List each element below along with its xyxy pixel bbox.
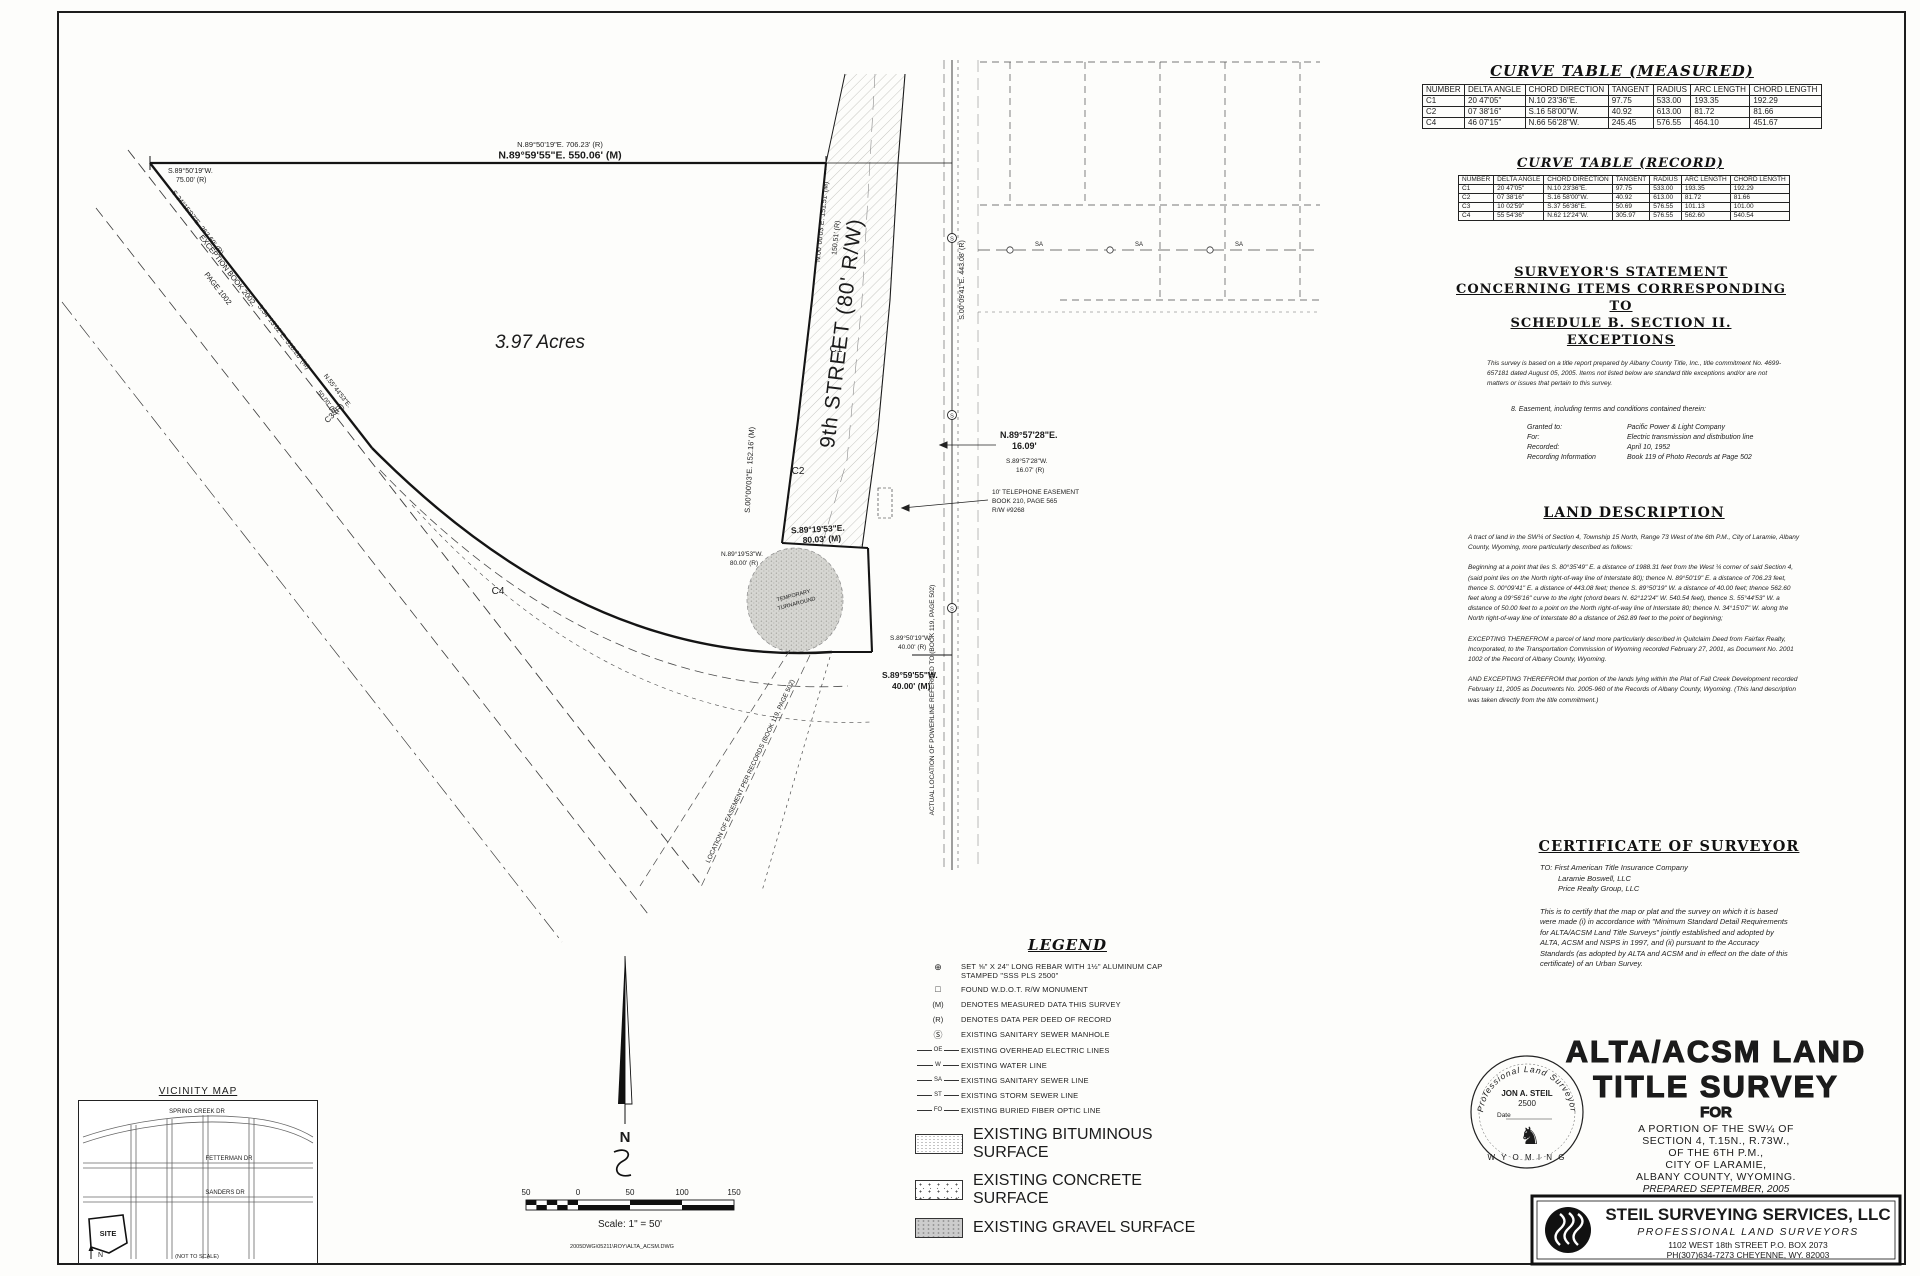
statement-title-line: SURVEYOR'S STATEMENT [1455,264,1787,281]
cell: 540.54 [1730,212,1789,221]
col-header: RADIUS [1650,176,1682,185]
cell: S.16 58'00"W. [1525,107,1608,118]
cell: 40.92 [1608,107,1653,118]
easement-value: Pacific Power & Light Company [1627,423,1787,433]
statement-intro: This survey is based on a title report p… [1487,359,1785,390]
legend-item: Ⓢ EXISTING SANITARY SEWER MANHOLE [915,1028,1220,1041]
vicinity-map-title: VICINITY MAP [78,1086,318,1097]
utility-corridor [944,60,1320,870]
sewer-tag: SA [1035,242,1043,248]
overhead-electric-line-icon: OE [915,1047,961,1053]
cell: N.10 23'36"E. [1525,96,1608,107]
land-description-p3: EXCEPTING THEREFROM a parcel of land mor… [1468,635,1800,666]
legend-title: LEGEND [915,936,1220,954]
north-label: N [620,1129,631,1146]
manhole-letter: S [950,414,954,420]
table-row: C207 38'16"S.16 58'00"W.40.92613.0081.72… [1423,107,1822,118]
firm-tagline: PROFESSIONAL LAND SURVEYORS [1637,1226,1859,1238]
manhole-symbol-icon: Ⓢ [915,1028,961,1041]
label-stub-east: S.00°00'03"E. 152.16' (M) [743,426,757,513]
vicinity-scale-note: (NOT TO SCALE) [175,1254,219,1260]
table-row: C455 54'36"N.62 12'24"W.305.97576.55562.… [1459,212,1790,221]
certificate-of-surveyor: CERTIFICATE OF SURVEYOR TO: First Americ… [1528,838,1810,970]
legend-label: EXISTING WATER LINE [961,1061,1047,1070]
vicinity-street-label: SPRING CREEK DR [169,1109,225,1115]
label-powerline-location: ACTUAL LOCATION OF POWERLINE REFERRED TO… [929,585,936,816]
line-tag: FO [934,1107,942,1113]
legend-item: FO EXISTING BURIED FIBER OPTIC LINE [915,1104,1220,1116]
vicinity-map-box: SPRING CREEK DR FETTERMAN DR SANDERS DR … [78,1100,318,1264]
sewer-tag: SA [1135,242,1143,248]
label-curve-c1: C1 [830,344,843,355]
title-location-4: CITY OF LARAMIE, [1665,1159,1766,1171]
land-description-p1: A tract of land in the SW¼ of Section 4,… [1468,533,1800,553]
scale-tick: 100 [675,1188,689,1197]
cell: 305.97 [1612,212,1650,221]
cell: 81.66 [1750,107,1822,118]
legend-item: (R) DENOTES DATA PER DEED OF RECORD [915,1013,1220,1025]
legend-label: EXISTING OVERHEAD ELECTRIC LINES [961,1046,1110,1055]
label-curve-c2: C2 [792,466,805,477]
easement-label: Recorded: [1527,443,1627,453]
curve-table-record-grid: NUMBER DELTA ANGLE CHORD DIRECTION TANGE… [1458,175,1790,221]
cell: 576.55 [1653,118,1691,129]
legend-label: EXISTING SANITARY SEWER MANHOLE [961,1030,1110,1039]
cell: N.66 56'28"W. [1525,118,1608,129]
certificate-to-3: Price Realty Group, LLC [1558,884,1810,895]
dimension-leaders [878,442,996,518]
firm-phone: PH(307)634-7273 CHEYENNE, WY. 82003 [1667,1250,1830,1260]
seal-number: 2500 [1518,1099,1536,1108]
firm-name: STEIL SURVEYING SERVICES, LLC [1605,1205,1890,1224]
vicinity-streets [83,1115,313,1259]
col-header: CHORD LENGTH [1730,176,1789,185]
legend-item: (M) DENOTES MEASURED DATA THIS SURVEY [915,998,1220,1010]
cell: N.62 12'24"W. [1544,212,1612,221]
scale-caption: Scale: 1" = 50' [598,1219,662,1230]
label-stub-dist-m: 80.03' (M) [802,533,841,545]
easement-value: Book 119 of Photo Records at Page 502 [1627,453,1787,463]
title-line-2: TITLE SURVEY [1593,1069,1839,1104]
cell: 97.75 [1608,96,1653,107]
vicinity-street-label: FETTERMAN DR [206,1156,254,1162]
legend-item: EXISTING BITUMINOUS SURFACE [915,1126,1220,1162]
line-tag: ST [934,1092,942,1098]
cell: 20 47'05" [1494,185,1544,194]
label-bottom-bearing-r: S.89°50'19"W. [890,634,932,642]
col-header: NUMBER [1423,85,1465,96]
col-header: RADIUS [1653,85,1691,96]
cell: 10 02'59" [1494,203,1544,212]
easement-row: Recording Information Book 119 of Photo … [1527,453,1787,463]
cell: 97.75 [1612,185,1650,194]
easement-row: Recorded: April 10, 1952 [1527,443,1787,453]
rebar-symbol-icon: ⊕ [915,962,961,973]
legend-item: EXISTING CONCRETE SURFACE [915,1172,1220,1208]
label-bottom-dist-r: 40.00' (R) [898,644,926,651]
legend-item: SA EXISTING SANITARY SEWER LINE [915,1074,1220,1086]
label-mid-bearing-r: S.89°57'28"W. [1006,457,1048,465]
sewer-tag: SA [1235,242,1243,248]
cell: 533.00 [1650,185,1682,194]
monument-symbol-icon: □ [915,984,961,994]
legend-label: FOUND W.D.O.T. R/W MONUMENT [961,985,1088,994]
table-row: C207 38'16"S.16 58'00"W.40.92613.0081.72… [1459,194,1790,203]
col-header: CHORD DIRECTION [1544,176,1612,185]
cell: 101.13 [1681,203,1730,212]
interstate-row-lines [62,150,702,942]
legend-label: EXISTING GRAVEL SURFACE [973,1219,1195,1237]
legend-item: EXISTING GRAVEL SURFACE [915,1218,1220,1238]
legend-label: EXISTING STORM SEWER LINE [961,1091,1078,1100]
label-curve-c4: C4 [492,586,505,597]
title-location-5: ALBANY COUNTY, WYOMING. [1636,1171,1796,1183]
legend-label: EXISTING BURIED FIBER OPTIC LINE [961,1106,1101,1115]
manhole-letter: S [950,607,954,613]
line-tag: W [935,1062,941,1068]
cell: C3 [1459,203,1494,212]
concrete-swatch-icon [915,1180,963,1200]
col-header: DELTA ANGLE [1494,176,1544,185]
col-header: DELTA ANGLE [1465,85,1526,96]
vicinity-north-label: N [98,1252,103,1259]
easement-row: For: Electric transmission and distribut… [1527,433,1787,443]
title-location-1: A PORTION OF THE SW¼ OF [1638,1123,1794,1135]
scale-tick: 150 [727,1188,741,1197]
legend-label: EXISTING CONCRETE SURFACE [973,1172,1220,1208]
label-tel-easement-1: 10' TELEPHONE EASEMENT [992,489,1079,496]
land-description-p2: Beginning at a point that lies S. 80°35'… [1468,563,1800,624]
cell: 576.55 [1650,203,1682,212]
land-description-p4: AND EXCEPTING THEREFROM that portion of … [1468,675,1800,706]
col-header: ARC LENGTH [1691,85,1750,96]
easement-row: Granted to: Pacific Power & Light Compan… [1527,423,1787,433]
gravel-turnaround [747,548,843,652]
label-easement-location: LOCATION OF EASEMENT PER RECORDS (BOOK 1… [705,679,796,865]
cell: 192.29 [1750,96,1822,107]
col-header: NUMBER [1459,176,1494,185]
cell: N.10 23'36"E. [1544,185,1612,194]
seal-state: W Y O M I N G [1487,1153,1566,1162]
statement-item-8: 8. Easement, including terms and conditi… [1511,406,1787,413]
label-mid-bearing-m: N.89°57'28"E. [1000,430,1058,440]
cell: C2 [1423,107,1465,118]
legend-label: SET ⅝" X 24" LONG REBAR WITH 1½" ALUMINU… [961,962,1171,980]
cell: C1 [1423,96,1465,107]
cell: 07 38'16" [1494,194,1544,203]
label-hwy-measured: S.34°13'02"E. 318.28' (M) [256,303,312,371]
col-header: ARC LENGTH [1681,176,1730,185]
legend-item: □ FOUND W.D.O.T. R/W MONUMENT [915,983,1220,995]
cell: 55 54'36" [1494,212,1544,221]
legend-label: EXISTING SANITARY SEWER LINE [961,1076,1089,1085]
label-east-line: S.00°09'41"E. 443.08' (R) [958,240,966,320]
col-header: CHORD LENGTH [1750,85,1822,96]
cell: S.16 58'00"W. [1544,194,1612,203]
title-prepared: PREPARED SEPTEMBER, 2005 [1643,1184,1790,1195]
cell: C4 [1459,212,1494,221]
label-nw-bearing: S.89°50'19"W. [168,167,213,175]
cell: 193.35 [1681,185,1730,194]
label-nw-distance: 75.00' (R) [176,177,207,184]
easement-value: Electric transmission and distribution l… [1627,433,1787,443]
scale-tick: 0 [576,1188,581,1197]
statement-title-line: CONCERNING ITEMS CORRESPONDING TO [1455,281,1787,315]
seal-horse-icon: ♞ [1519,1123,1541,1150]
cell: 613.00 [1653,107,1691,118]
label-bottom-dist-m: 40.00' (M) [892,681,931,691]
manhole-letter: S [950,237,954,243]
legend-label: DENOTES DATA PER DEED OF RECORD [961,1015,1112,1024]
label-hwy-record: S.34°15'07"E. 263.69' (R) [170,189,225,257]
record-symbol: (R) [915,1015,961,1024]
cell: 576.55 [1650,212,1682,221]
label-mid-dist-r: 16.07' (R) [1016,467,1044,474]
cell: C4 [1423,118,1465,129]
certificate-body: This is to certify that the map or plat … [1540,907,1792,970]
cell: 20 47'05" [1465,96,1526,107]
scale-tick: 50 [626,1188,635,1197]
cell: 464.10 [1691,118,1750,129]
storm-sewer-line-icon: ST [915,1092,961,1098]
cell: S.37 56'36"E. [1544,203,1612,212]
fiber-optic-line-icon: FO [915,1107,961,1113]
label-top-measured: N.89°59'55"E. 550.06' (M) [498,150,621,162]
easement-value: April 10, 1952 [1627,443,1787,453]
cell: 192.29 [1730,185,1789,194]
title-line-1: ALTA/ACSM LAND [1566,1034,1867,1069]
vicinity-map-drawing: SPRING CREEK DR FETTERMAN DR SANDERS DR … [79,1101,316,1263]
title-location-3: OF THE 6TH P.M., [1668,1147,1763,1159]
cell: 81.66 [1730,194,1789,203]
measured-symbol: (M) [915,1000,961,1009]
firm-address: 1102 WEST 18th STREET P.O. BOX 2073 [1668,1240,1828,1250]
sanitary-sewer-line-icon: SA [915,1077,961,1083]
gravel-swatch-icon [915,1218,963,1238]
line-tag: SA [934,1077,942,1083]
cell: 50.69 [1612,203,1650,212]
survey-sheet: SA SA SA [0,0,1920,1276]
label-tel-easement-2: BOOK 210, PAGE 565 [992,498,1058,505]
table-row: C120 47'05"N.10 23'36"E.97.75533.00193.3… [1423,96,1822,107]
water-line-icon: W [915,1062,961,1068]
adjacent-lot-grid [980,62,1320,300]
easement-label: Recording Information [1527,453,1627,463]
label-mid-dist-m: 16.09' [1012,441,1037,451]
table-row: C120 47'05"N.10 23'36"E.97.75533.00193.3… [1459,185,1790,194]
legend-item: ST EXISTING STORM SEWER LINE [915,1089,1220,1101]
certificate-title: CERTIFICATE OF SURVEYOR [1528,838,1810,855]
col-header: CHORD DIRECTION [1525,85,1608,96]
cell: 533.00 [1653,96,1691,107]
cell: 451.67 [1750,118,1822,129]
cell: 46 07'15" [1465,118,1526,129]
legend-label: EXISTING BITUMINOUS SURFACE [973,1126,1220,1162]
label-stub-bearing-r: N.89°19'53"W. [721,550,763,558]
curve-table-record: CURVE TABLE (RECORD) NUMBER DELTA ANGLE … [1458,156,1783,221]
seal-name: JON A. STEIL [1501,1089,1552,1098]
file-note: 2005DWG\05211\ROY\ALTA_ACSM.DWG [570,1244,674,1250]
curve-table-measured-grid: NUMBER DELTA ANGLE CHORD DIRECTION TANGE… [1422,84,1822,129]
legend: LEGEND ⊕ SET ⅝" X 24" LONG REBAR WITH 1½… [915,936,1220,1248]
certificate-to-2: Laramie Boswell, LLC [1558,874,1810,885]
label-tel-easement-3: R/W #9268 [992,507,1025,514]
curve-table-measured: CURVE TABLE (MEASURED) NUMBER DELTA ANGL… [1422,62,1822,129]
seal-date-label: Date [1497,1112,1511,1119]
statement-title-line: SCHEDULE B. SECTION II. EXCEPTIONS [1455,315,1787,349]
certificate-to-1: TO: First American Title Insurance Compa… [1540,863,1810,874]
cell: 613.00 [1650,194,1682,203]
label-acreage: 3.97 Acres [495,332,586,353]
table-row: C446 07'15"N.66 56'28"W.245.45576.55464.… [1423,118,1822,129]
line-tag: OE [934,1047,943,1053]
curve-table-record-title: CURVE TABLE (RECORD) [1458,156,1783,171]
scale-tick: 50 [522,1188,531,1197]
cell: 81.72 [1691,107,1750,118]
vicinity-map: VICINITY MAP SPRING CREEK DR FETTERMAN D… [78,1086,318,1264]
title-location-2: SECTION 4, T.15N., R.73W., [1642,1135,1790,1147]
vicinity-street-label: SANDERS DR [205,1190,245,1196]
cell: 245.45 [1608,118,1653,129]
vicinity-site-label: SITE [100,1229,117,1238]
scale-bar [526,1200,734,1210]
surveyors-statement-title: SURVEYOR'S STATEMENT CONCERNING ITEMS CO… [1455,264,1787,349]
bituminous-swatch-icon [915,1134,963,1154]
cell: 40.92 [1612,194,1650,203]
easement-label: Granted to: [1527,423,1627,433]
land-description: LAND DESCRIPTION A tract of land in the … [1468,505,1800,706]
legend-item: W EXISTING WATER LINE [915,1059,1220,1071]
cell: 101.00 [1730,203,1789,212]
cell: C2 [1459,194,1494,203]
col-header: TANGENT [1612,176,1650,185]
easement-label: For: [1527,433,1627,443]
label-stub-dist-r: 80.00' (R) [730,560,758,567]
col-header: TANGENT [1608,85,1653,96]
cell: 193.35 [1691,96,1750,107]
land-description-title: LAND DESCRIPTION [1468,505,1800,521]
table-row: C310 02'59"S.37 56'36"E.50.69576.55101.1… [1459,203,1790,212]
legend-item: OE EXISTING OVERHEAD ELECTRIC LINES [915,1044,1220,1056]
legend-item: ⊕ SET ⅝" X 24" LONG REBAR WITH 1½" ALUMI… [915,962,1220,980]
surveyors-statement: SURVEYOR'S STATEMENT CONCERNING ITEMS CO… [1455,264,1787,463]
label-top-record: N.89°50'19"E. 706.23' (R) [517,140,603,149]
cell: 81.72 [1681,194,1730,203]
cell: 562.60 [1681,212,1730,221]
title-for: FOR [1700,1104,1732,1121]
cell: 07 38'16" [1465,107,1526,118]
cell: C1 [1459,185,1494,194]
legend-label: DENOTES MEASURED DATA THIS SURVEY [961,1000,1121,1009]
curve-table-measured-title: CURVE TABLE (MEASURED) [1422,62,1822,80]
